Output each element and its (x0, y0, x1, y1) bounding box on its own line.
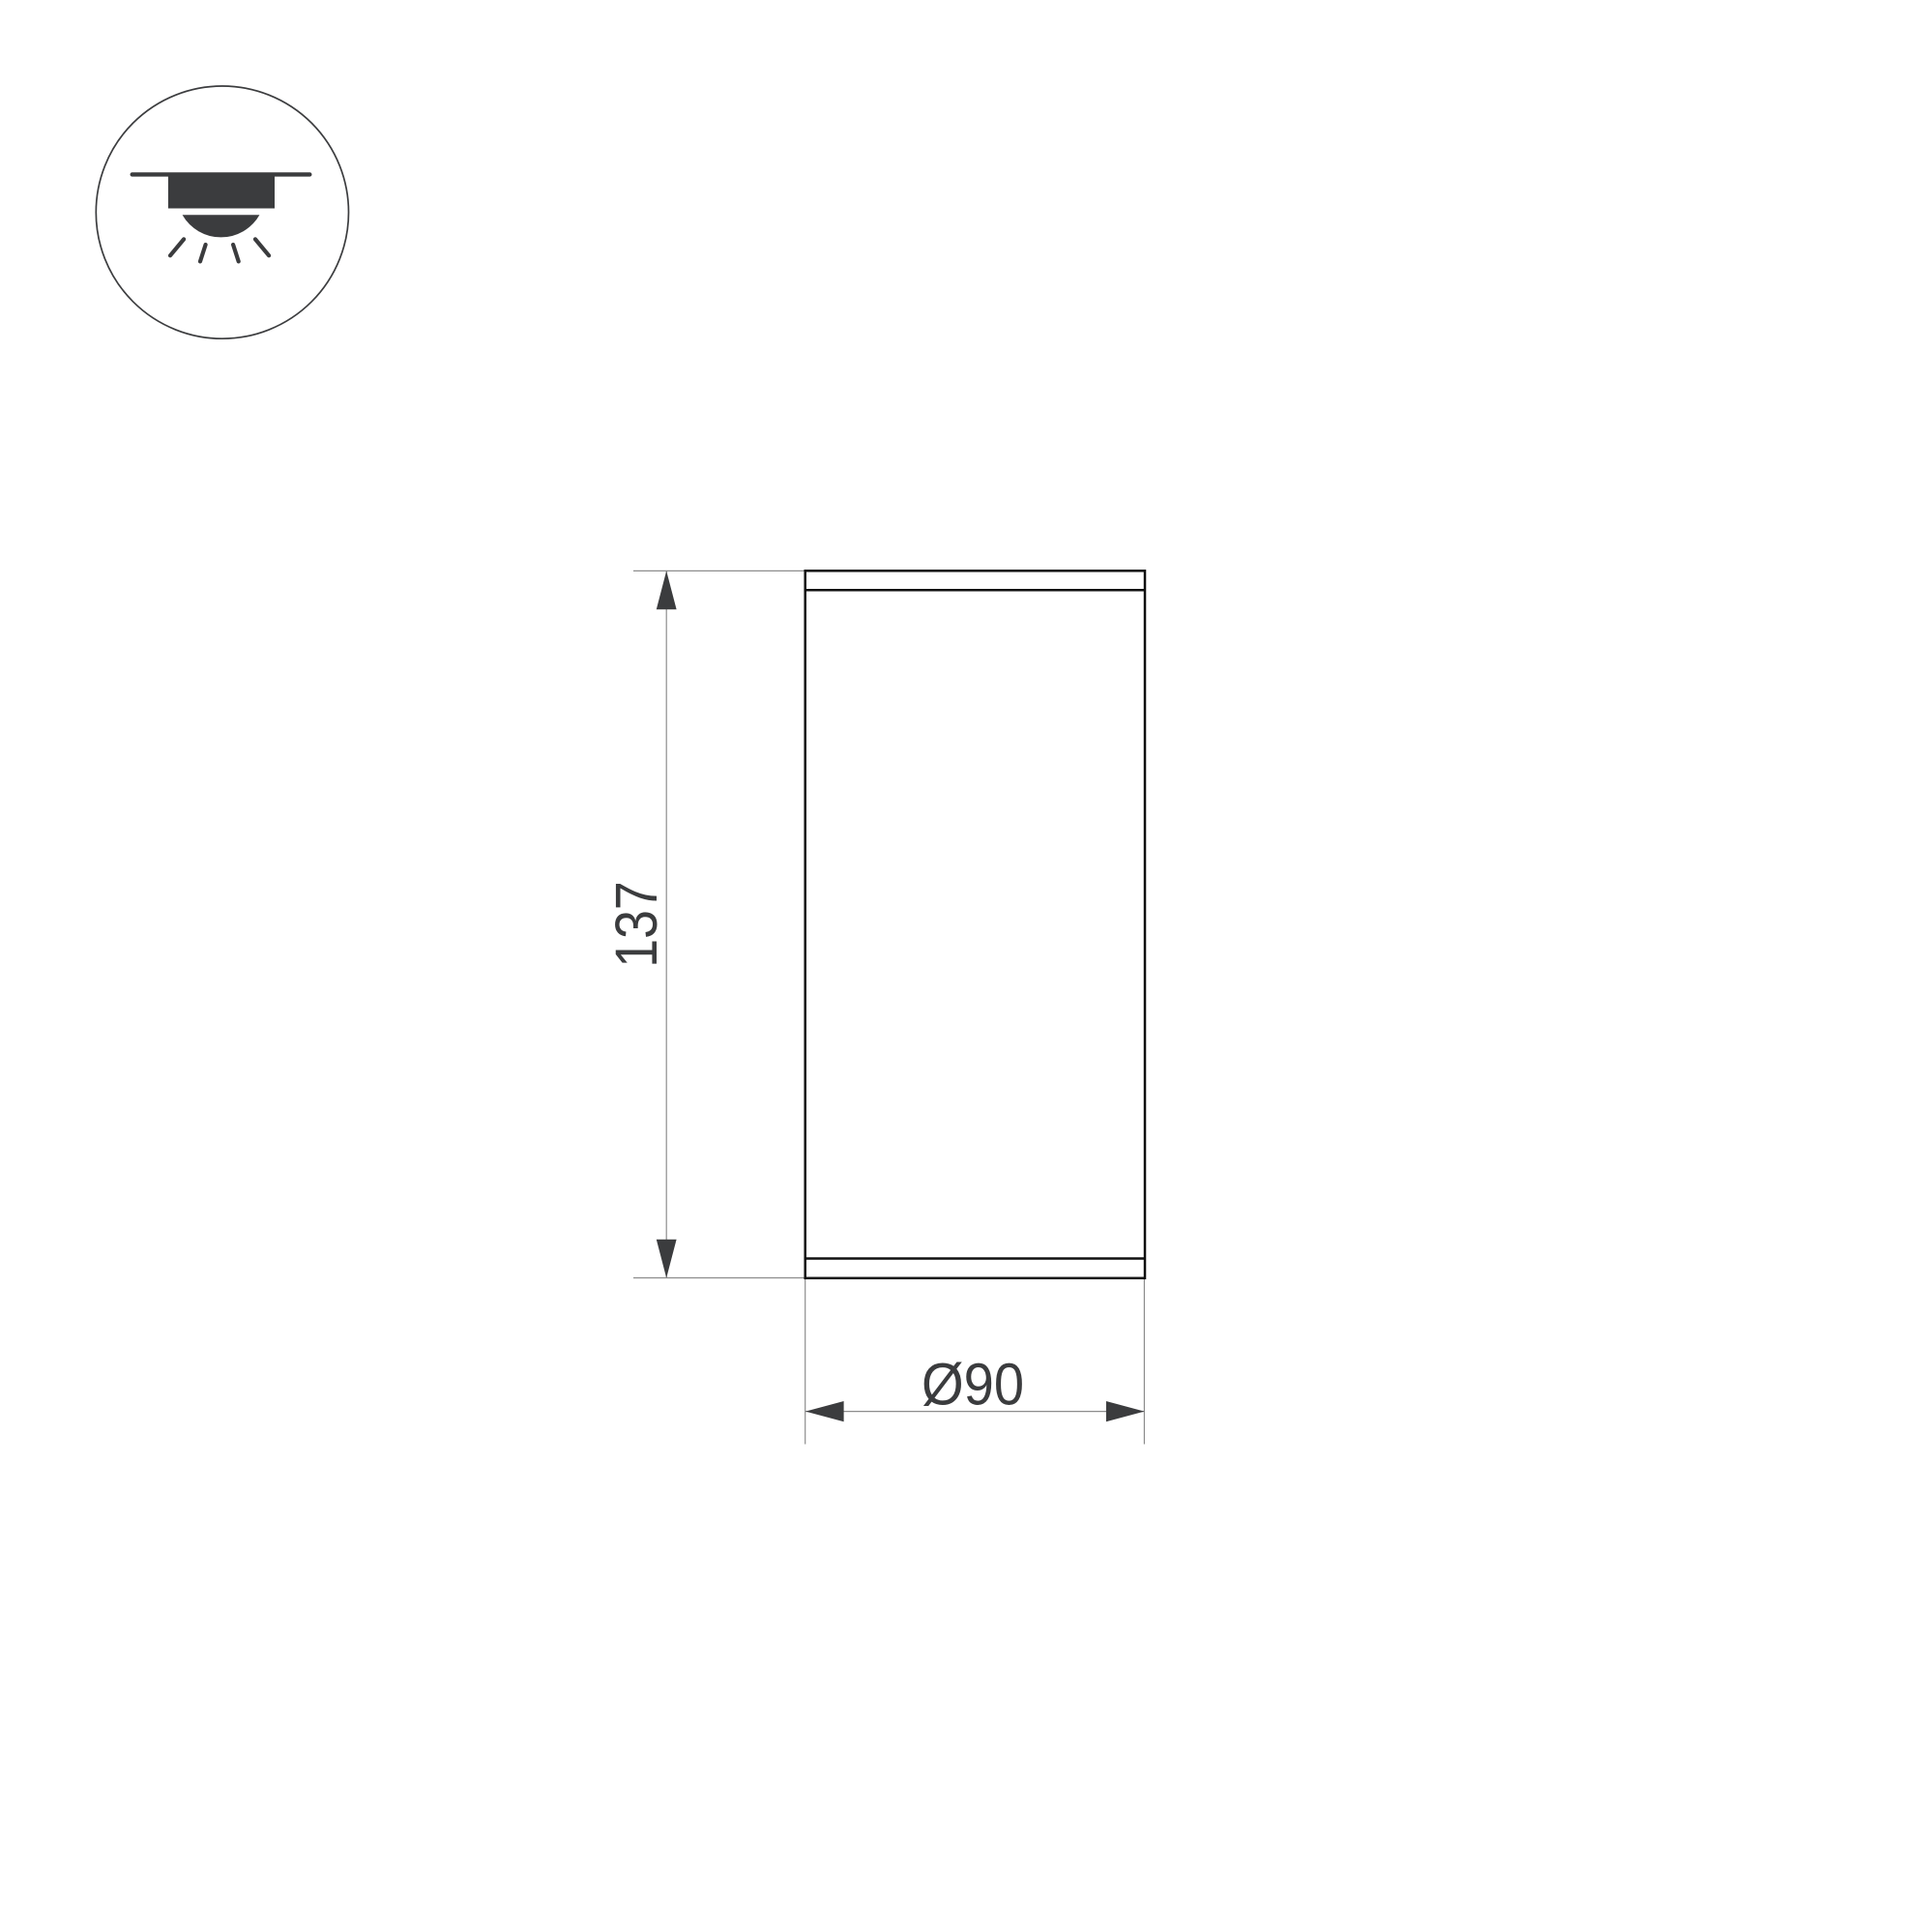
svg-text:137: 137 (604, 881, 670, 968)
svg-text:Ø90: Ø90 (922, 1352, 1024, 1418)
